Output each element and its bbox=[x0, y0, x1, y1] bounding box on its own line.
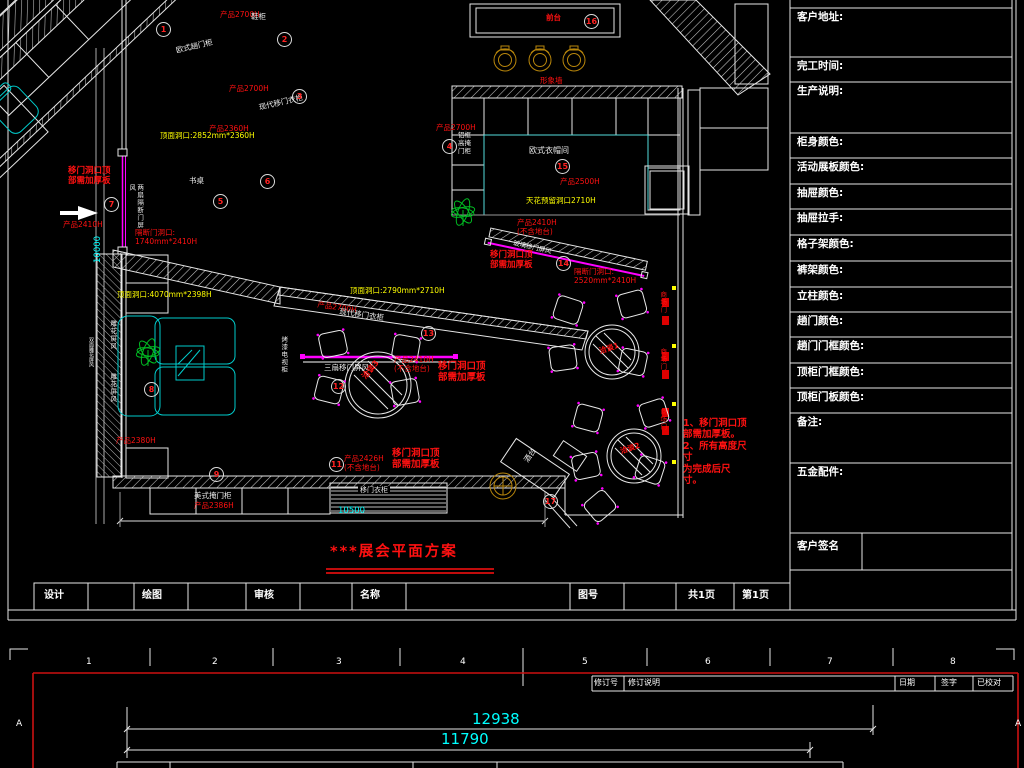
field-top-cabinet-panel-color: 顶柜门板颜色: bbox=[797, 392, 864, 404]
item-circle-11: 11 bbox=[329, 457, 344, 472]
dim-11790: 11790 bbox=[441, 731, 489, 748]
label-thicken-note-bottom: 移门洞口顶 部需加厚板 bbox=[392, 448, 440, 471]
label-opening-4070: 顶面洞口:4070mm*2398H bbox=[117, 290, 212, 299]
item-circle-14: 14 bbox=[556, 256, 571, 271]
label-mall-door-2: 商场门 bbox=[658, 348, 666, 376]
field-post-color: 立柱颜色: bbox=[797, 291, 843, 303]
label-product-2380h: 产品2380H bbox=[116, 436, 156, 445]
item-circle-13: 13 bbox=[421, 326, 436, 341]
item-circle-7: 7 bbox=[104, 197, 119, 212]
label-carved-screen-1: 雕花屏风 bbox=[108, 320, 116, 372]
entry-arrow bbox=[60, 206, 98, 220]
ruler-7: 7 bbox=[827, 658, 833, 668]
label-mall-door-1: 商场门 bbox=[658, 291, 666, 319]
ruler-1: 1 bbox=[86, 658, 92, 668]
item-circle-4: 4 bbox=[442, 139, 457, 154]
field-customer-signature: 客户签名 bbox=[797, 541, 839, 553]
label-product-2700h-2: 产品2700H bbox=[229, 84, 269, 93]
label-product-2426h: 产品2426H (不含地台) bbox=[344, 454, 384, 472]
dim-10000: 10000 bbox=[93, 236, 103, 263]
label-mall-door-3: 商场门 bbox=[658, 408, 666, 436]
grid-letter-left: A bbox=[16, 720, 22, 730]
field-trouser-rack-color: 裤架颜色: bbox=[797, 265, 843, 277]
ruler-4: 4 bbox=[460, 658, 466, 668]
field-top-cabinet-frame-color: 顶柜门框颜色: bbox=[797, 367, 864, 379]
ruler-2: 2 bbox=[212, 658, 218, 668]
titlebar-drawing-no: 图号 bbox=[578, 590, 598, 601]
label-shoe-cabinet: 鞋柜 bbox=[251, 12, 266, 21]
wall-clock bbox=[490, 473, 516, 499]
label-front-desk: 前台 bbox=[546, 13, 561, 22]
field-cabinet-body-color: 柜身颜色: bbox=[797, 137, 843, 149]
ruler-3: 3 bbox=[336, 658, 342, 668]
titlebar-total-pages: 共1页 bbox=[688, 590, 715, 601]
label-product-2386h: 产品2386H bbox=[194, 501, 234, 510]
revision-date-header: 日期 bbox=[899, 679, 915, 688]
cad-sheet: 客户地址: 完工时间: 生产说明: 柜身颜色: 活动展板颜色: 抽屉颜色: 抽屉… bbox=[0, 0, 1024, 768]
label-carved-screen-2: 雕花屏风 bbox=[108, 373, 116, 425]
item-circle-1: 1 bbox=[156, 22, 171, 37]
item-circle-2: 2 bbox=[277, 32, 292, 47]
revision-checked-header: 已校对 bbox=[977, 679, 1001, 688]
label-euro-cloakroom: 欧式衣帽间 bbox=[529, 146, 569, 156]
label-product-2410h-center: 产品2410H (不含地台) bbox=[394, 355, 434, 373]
label-image-wall: 形象墙 bbox=[540, 76, 563, 85]
field-drawer-color: 抽屉颜色: bbox=[797, 188, 843, 200]
item-circle-9: 9 bbox=[209, 467, 224, 482]
ruler-6: 6 bbox=[705, 658, 711, 668]
label-american-cabinet: 美式掩门柜 bbox=[194, 491, 232, 500]
titlebar-checked: 审核 bbox=[254, 590, 274, 601]
label-alu-frame-cabinet: 铝框 高掩 门柜 bbox=[458, 132, 471, 155]
item-circle-8: 8 bbox=[144, 382, 159, 397]
label-partition-opening-right: 隔断门洞口: 2520mm*2410H bbox=[574, 267, 636, 285]
mirror bbox=[176, 346, 204, 380]
label-product-2500h: 产品2500H bbox=[560, 177, 600, 186]
item-circle-16: 16 bbox=[584, 14, 599, 29]
label-product-2410h-mid: 产品2410H (不含地台) bbox=[517, 218, 557, 236]
field-customer-address: 客户地址: bbox=[797, 12, 843, 24]
bottom-sheet bbox=[10, 648, 1018, 768]
field-sliding-door-frame-color: 趟门门框颜色: bbox=[797, 341, 864, 353]
grid-letter-right: A bbox=[1015, 720, 1021, 730]
item-circle-15: 15 bbox=[555, 159, 570, 174]
field-hardware: 五金配件: bbox=[797, 467, 843, 479]
label-thicken-note-left: 移门洞口顶 部需加厚板 bbox=[68, 166, 111, 186]
dim-12938: 12938 bbox=[472, 711, 520, 728]
field-shelf-color: 活动展板颜色: bbox=[797, 162, 864, 174]
label-tv-cabinet: 烤漆电视柜 bbox=[279, 336, 287, 380]
item-circle-12: 12 bbox=[331, 379, 346, 394]
label-sliding-wardrobe: 移门衣柜 bbox=[358, 486, 390, 494]
drawing-title: ***展会平面方案 bbox=[330, 545, 458, 561]
field-production-notes: 生产说明: bbox=[797, 86, 843, 98]
label-desk: 书桌 bbox=[189, 176, 204, 185]
revision-no-header: 修订号 bbox=[594, 679, 618, 688]
field-remarks: 备注: bbox=[797, 417, 822, 429]
revision-desc-header: 修订说明 bbox=[628, 679, 660, 688]
titlebar-design: 设计 bbox=[44, 590, 64, 601]
titlebar-name: 名称 bbox=[360, 590, 380, 601]
dim-10500: 10500 bbox=[338, 506, 365, 516]
label-opening-2852: 顶面洞口:2852mm*2360H bbox=[160, 131, 255, 140]
label-thicken-note-right: 移门洞口顶 部需加厚板 bbox=[490, 250, 533, 270]
item-circle-17: 17 bbox=[543, 494, 558, 509]
label-thicken-note-mid: 移门洞口顶 部需加厚板 bbox=[438, 361, 486, 384]
label-partition-opening-left: 隔断门洞口: 1740mm*2410H bbox=[135, 228, 197, 246]
label-double-carved-screen: 双面雕花屏风 bbox=[88, 337, 94, 393]
item-circle-3: 3 bbox=[292, 89, 307, 104]
field-sliding-door-color: 趟门颜色: bbox=[797, 316, 843, 328]
label-opening-2790: 顶面洞口:2790mm*2710H bbox=[350, 286, 445, 295]
field-drawer-handle: 抽屉拉手: bbox=[797, 213, 843, 225]
field-finish-time: 完工时间: bbox=[797, 61, 843, 73]
label-ceiling-opening-2710h: 天花预留洞口2710H bbox=[526, 196, 596, 205]
item-circle-6: 6 bbox=[260, 174, 275, 189]
item-circle-5: 5 bbox=[213, 194, 228, 209]
ruler-8: 8 bbox=[950, 658, 956, 668]
ruler-5: 5 bbox=[582, 658, 588, 668]
titlebar-page-no: 第1页 bbox=[742, 590, 769, 601]
field-grid-rack-color: 格子架颜色: bbox=[797, 239, 854, 251]
label-product-2410h-left: 产品2410H bbox=[63, 220, 103, 229]
titlebar-drawn: 绘图 bbox=[142, 590, 162, 601]
revision-sign-header: 签字 bbox=[941, 679, 957, 688]
label-general-notes: 1、移门洞口顶 部需加厚板。 2、所有高度尺寸 为完成后尺寸。 bbox=[683, 418, 747, 486]
